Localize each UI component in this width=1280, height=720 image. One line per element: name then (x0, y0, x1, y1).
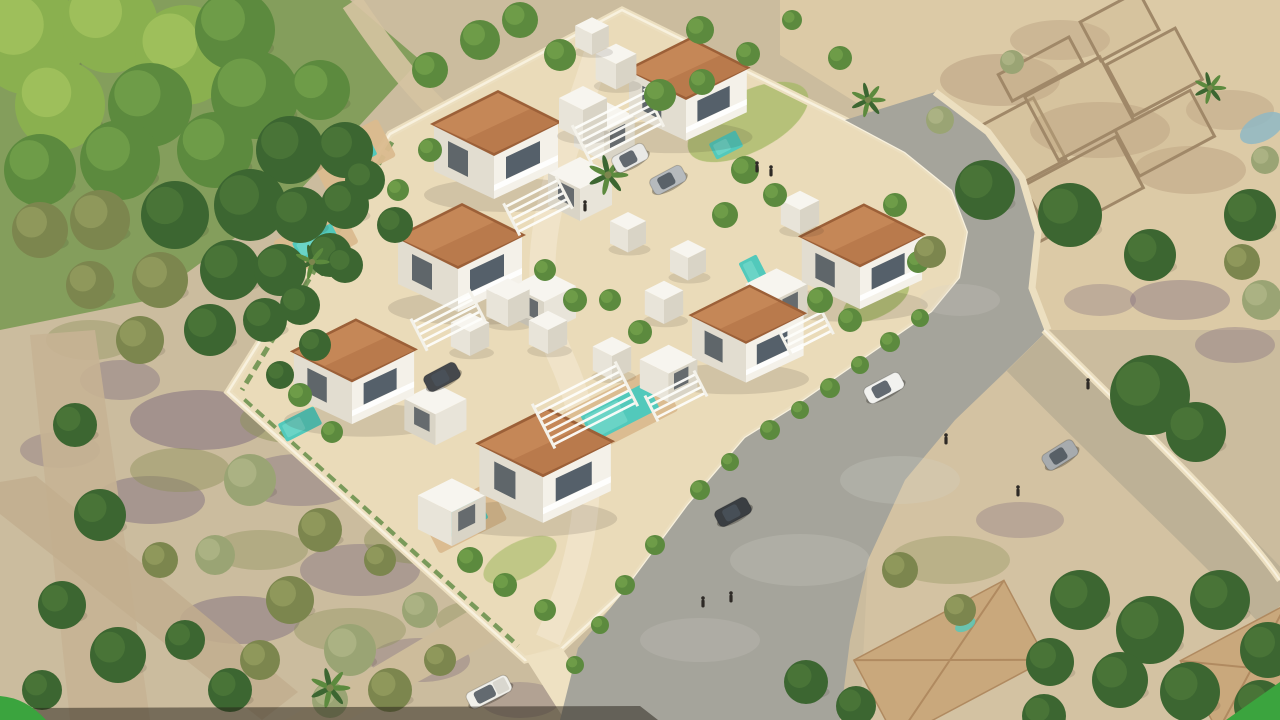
tree (1224, 244, 1260, 280)
tree (141, 181, 209, 249)
tree (345, 160, 385, 200)
tree (195, 535, 235, 575)
tree (851, 356, 869, 374)
tree (760, 420, 780, 440)
tree (689, 69, 715, 95)
terrain-patch (1064, 284, 1136, 316)
tree (299, 329, 331, 361)
tree (736, 42, 760, 66)
person (583, 200, 587, 211)
person (1086, 378, 1090, 389)
tree (22, 670, 62, 710)
tree (615, 575, 635, 595)
terrain-patch (1130, 280, 1230, 320)
person (769, 165, 773, 176)
tree (288, 383, 312, 407)
photo-shadow-strip (22, 706, 658, 720)
render-stage (0, 0, 1280, 720)
tree (882, 552, 918, 588)
tree (493, 573, 517, 597)
tree (883, 193, 907, 217)
tree (457, 547, 483, 573)
tree (240, 640, 280, 680)
tree (402, 592, 438, 628)
tree (690, 480, 710, 500)
tree (926, 106, 954, 134)
tree (644, 79, 676, 111)
tree (731, 156, 759, 184)
tree (645, 535, 665, 555)
tree (820, 378, 840, 398)
person (701, 596, 705, 607)
tree (321, 421, 343, 443)
tree (721, 453, 739, 471)
tree (142, 542, 178, 578)
tree (566, 656, 584, 674)
tree (686, 16, 714, 44)
tree (782, 10, 802, 30)
tree (1251, 146, 1279, 174)
tree (763, 183, 787, 207)
tree (563, 288, 587, 312)
tree (1000, 50, 1024, 74)
tree (599, 289, 621, 311)
terrain-patch (976, 502, 1064, 538)
tree (280, 285, 320, 325)
tree (534, 599, 556, 621)
tree (1038, 183, 1102, 247)
tree (460, 20, 500, 60)
tree (712, 202, 738, 228)
tree (914, 236, 946, 268)
tree (364, 544, 396, 576)
tree (412, 52, 448, 88)
tree (828, 46, 852, 70)
terrain-patch (130, 448, 230, 492)
tree (791, 401, 809, 419)
tree (424, 644, 456, 676)
tree (327, 247, 363, 283)
tree (4, 134, 76, 206)
tree (880, 332, 900, 352)
tree (377, 207, 413, 243)
tree (911, 309, 929, 327)
tree (387, 179, 409, 201)
tree (80, 120, 160, 200)
tree (534, 259, 556, 281)
tree (266, 361, 294, 389)
tree (628, 320, 652, 344)
tree (944, 594, 976, 626)
tree (807, 287, 833, 313)
tree (418, 138, 442, 162)
person (944, 433, 948, 444)
person (729, 591, 733, 602)
aerial-render (0, 0, 1280, 720)
tree (165, 620, 205, 660)
tree (544, 39, 576, 71)
tree (838, 308, 862, 332)
person (755, 161, 759, 172)
tree (591, 616, 609, 634)
person (1016, 485, 1020, 496)
tree (502, 2, 538, 38)
terrain-patch (1195, 327, 1275, 363)
